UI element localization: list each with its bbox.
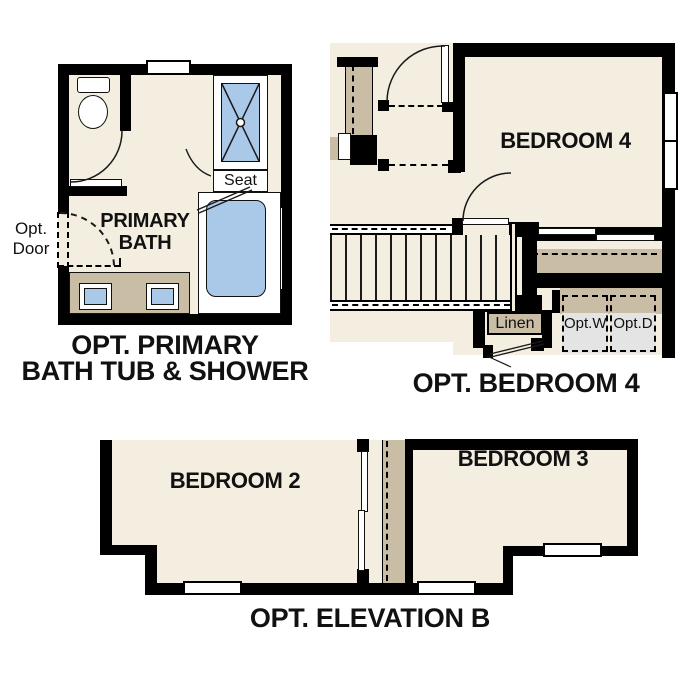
bedroom4-caption: OPT. BEDROOM 4 — [376, 369, 676, 397]
linen-label: Linen — [487, 313, 543, 334]
divider-wall-black — [405, 439, 413, 585]
closet-slider-panel-2 — [596, 234, 655, 241]
hall-door-leaf — [441, 45, 449, 103]
stair-rail-bottom-dash — [332, 304, 510, 306]
hall-opening2-stub-right — [448, 160, 461, 173]
bath-top-window — [146, 60, 191, 75]
bedroom3-wall-right — [627, 439, 638, 556]
linen-foot-left — [483, 345, 493, 358]
hall-stub-top — [337, 57, 378, 67]
hall-opening2-stub-left — [378, 159, 389, 171]
linen-foot-right — [531, 338, 544, 351]
hall-closet-strip — [345, 63, 373, 137]
stair-rail-top — [330, 224, 452, 235]
hall-closet-shelfbox — [338, 133, 351, 160]
hall-opening2-dashed — [389, 164, 448, 166]
hall-closet-rod-dashed — [352, 65, 354, 134]
sink-right-basin — [151, 288, 174, 305]
stair-rail-bottom — [330, 300, 517, 311]
toilet-room-divider-wall — [120, 75, 131, 131]
toilet-room-stub-wall — [58, 186, 127, 196]
hall-opening1-stub-left — [378, 100, 389, 111]
bath-wall-bottom — [58, 314, 292, 325]
bedroom3-window-upper — [543, 543, 602, 557]
sink-left-basin — [84, 288, 107, 305]
floorplan-sheet: Opt.W Opt.D — [0, 0, 687, 687]
stair-rail-top-dash — [332, 228, 446, 230]
sink-left — [79, 283, 112, 310]
stair-landing-edge — [510, 224, 517, 311]
closet-rod-dashed — [532, 253, 657, 255]
bedroom3-floor-lower — [410, 548, 510, 584]
hall-closet-tan-bit — [330, 137, 338, 160]
closet-shelf — [527, 249, 662, 273]
opt-door-leaf-dashed — [58, 265, 120, 267]
primary-bath-room-label: PRIMARYBATH — [85, 210, 205, 254]
bedroom3-step-wall-v — [503, 546, 513, 595]
shower-pan — [221, 83, 260, 162]
divider-window-seg2 — [358, 510, 365, 571]
opt-washer-box: Opt.W — [562, 295, 608, 352]
bedroom4-wall-right — [662, 43, 675, 358]
toilet-tank — [77, 77, 110, 93]
toilet-bowl — [78, 95, 108, 129]
divider-wall-strip — [382, 440, 405, 583]
bedroom4-room-label: BEDROOM 4 — [463, 129, 668, 153]
stair-end-column — [522, 222, 537, 300]
stair-treads — [330, 235, 511, 300]
divider-window-seg1 — [361, 451, 368, 512]
bedroom4-wall-left — [453, 57, 465, 172]
sink-right — [146, 283, 179, 310]
opt-dryer-label: Opt.D — [612, 315, 654, 332]
shelf-lower-wall — [527, 273, 667, 288]
hall-opening1-stub-right — [442, 102, 455, 112]
opt-door-leaf-tick — [119, 258, 121, 267]
toilet-room-door-leaf — [70, 179, 122, 187]
bedroom3-window-lower — [417, 581, 476, 595]
divider-dashed-line — [386, 441, 388, 581]
bedroom2-room-label: BEDROOM 2 — [133, 469, 337, 493]
bedroom2-wall-left — [100, 440, 112, 553]
bedroom2-window — [183, 581, 242, 595]
bedroom3-room-label: BEDROOM 3 — [421, 447, 625, 471]
opt-door-label: Opt.Door — [6, 219, 56, 259]
tub — [206, 200, 266, 297]
bedroom4-wall-top — [453, 43, 675, 57]
opt-door-frame-dashed — [57, 212, 69, 268]
closet-slider-panel-1 — [538, 228, 596, 235]
divider-window-cap-bottom — [357, 569, 369, 584]
bedroom4-door-leaf — [462, 218, 509, 225]
hall-opening1-dashed — [389, 105, 443, 107]
hall-closet-wall-chunk — [350, 135, 377, 165]
laundry-stub — [552, 290, 560, 313]
seat-label: Seat — [213, 171, 268, 191]
bedroom2-floor-lower — [157, 548, 409, 584]
opt-washer-label: Opt.W — [564, 315, 606, 332]
opt-dryer-box: Opt.D — [610, 295, 656, 352]
bath-caption: OPT. PRIMARYBATH TUB & SHOWER — [5, 332, 325, 384]
elevation-caption: OPT. ELEVATION B — [218, 604, 522, 632]
